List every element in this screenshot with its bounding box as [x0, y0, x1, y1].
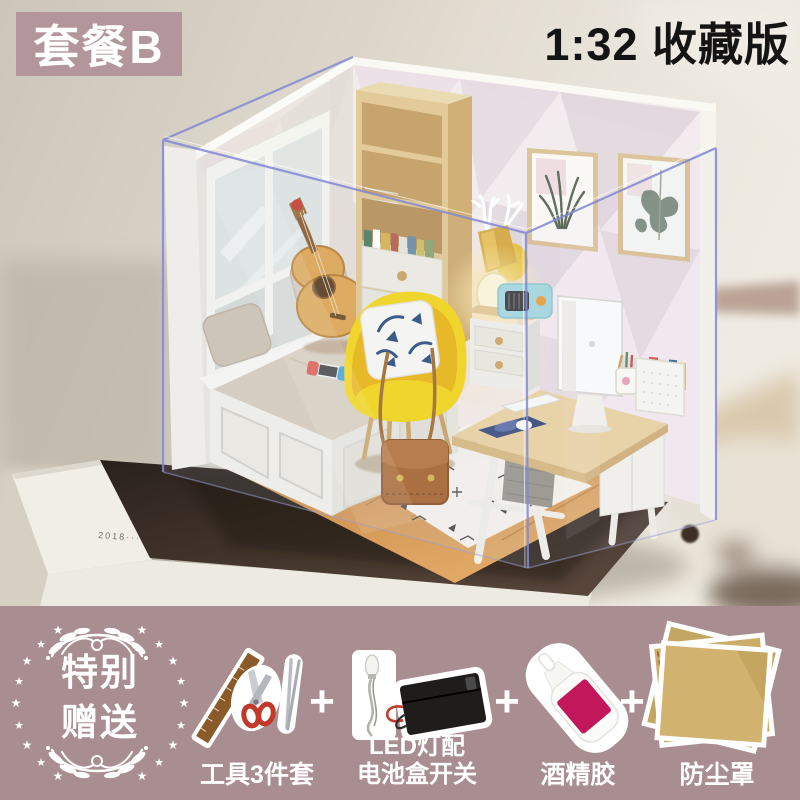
svg-text:★: ★ — [53, 623, 64, 637]
gift-label-tools: 工具3件套 — [200, 755, 314, 791]
gift-item-dust-cover — [641, 621, 782, 754]
svg-text:★: ★ — [154, 757, 164, 769]
svg-text:★: ★ — [137, 623, 148, 637]
gift-badge-line2: 赠送 — [22, 698, 178, 748]
miniature-room-photo: 2018······ — [0, 0, 800, 606]
svg-text:★: ★ — [137, 769, 148, 783]
svg-text:★: ★ — [11, 696, 22, 710]
acrylic-dust-cover — [163, 57, 716, 568]
svg-text:★: ★ — [179, 696, 190, 710]
svg-text:★: ★ — [36, 757, 46, 769]
gift-badge-line1: 特别 — [22, 648, 178, 698]
gift-label-cover: 防尘罩 — [679, 755, 754, 791]
product-listing-image: 2018······ — [0, 0, 800, 800]
svg-text:★: ★ — [53, 769, 64, 783]
gift-label-led: LED灯配 电池盒开关 — [357, 733, 477, 789]
gift-label-glue: 酒精胶 — [540, 755, 615, 791]
gift-label-led-line1: LED灯配 — [357, 733, 477, 761]
gift-badge-text: 特别 赠送 — [22, 648, 178, 748]
package-badge: 套餐B — [16, 12, 182, 76]
scale-edition-title: 1:32 收藏版 — [544, 8, 790, 73]
gift-label-led-line2: 电池盒开关 — [357, 761, 477, 789]
plus-sign-3: + — [608, 678, 656, 726]
package-badge-label: 套餐B — [33, 11, 164, 77]
plus-sign-1: + — [298, 678, 346, 726]
scale-edition-text: 1:32 收藏版 — [544, 19, 790, 70]
plus-sign-2: + — [483, 678, 531, 726]
